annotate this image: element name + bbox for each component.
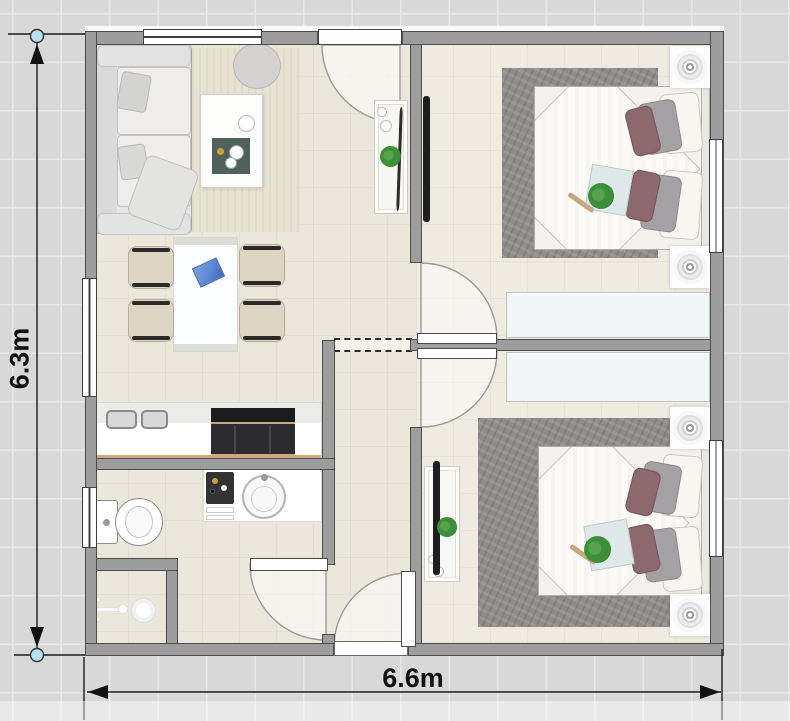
- dim-arrow-up: [30, 44, 44, 64]
- dim-arrow-down: [30, 627, 44, 647]
- dimension-overlay: [0, 0, 790, 721]
- horizontal-dimension-label: 6.6m: [373, 663, 453, 694]
- floor-plan-canvas: 6.3m 6.6m: [0, 0, 790, 721]
- canvas-bottom-band: [0, 701, 790, 721]
- vertical-dimension-label: 6.3m: [5, 326, 36, 392]
- dim-handle-top[interactable]: [31, 30, 44, 43]
- dim-arrow-right: [700, 685, 720, 699]
- dim-arrow-left: [88, 685, 108, 699]
- dim-handle-bottom[interactable]: [31, 649, 44, 662]
